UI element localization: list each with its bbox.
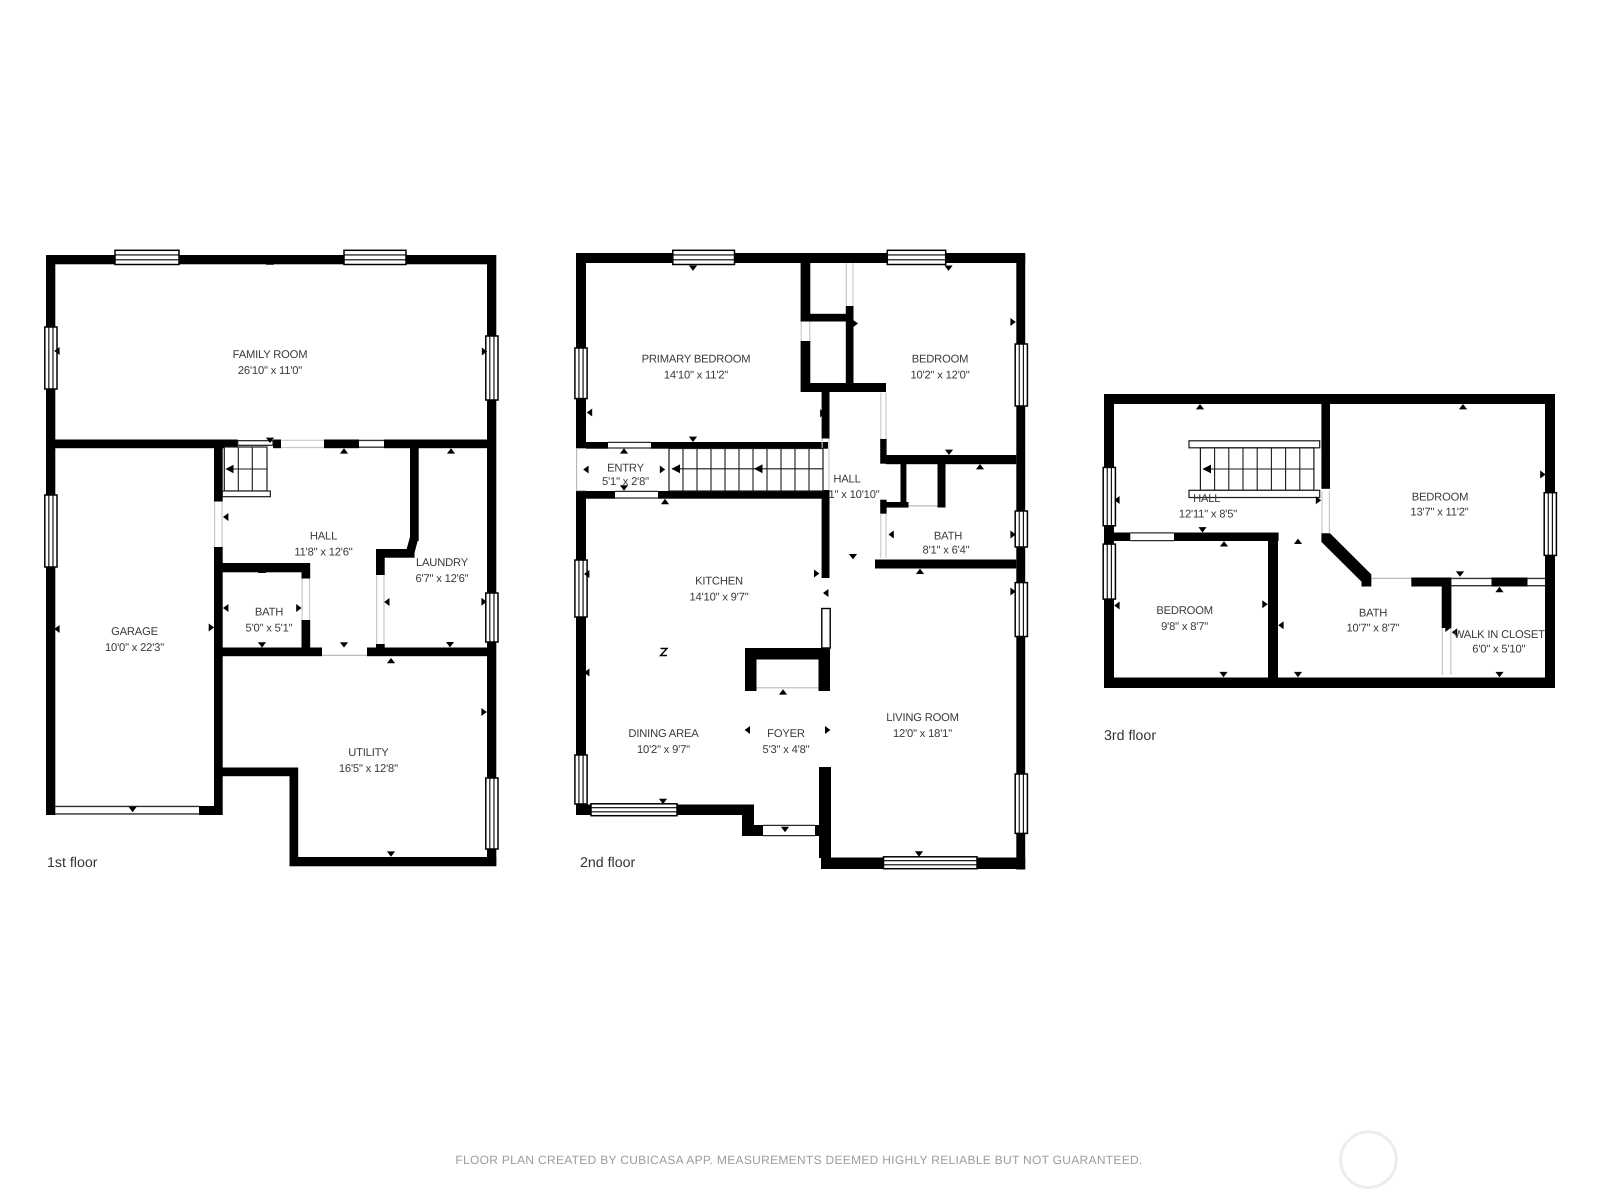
svg-text:KITCHEN: KITCHEN [695, 576, 743, 588]
svg-text:10'2" x 9'7": 10'2" x 9'7" [637, 744, 690, 756]
svg-text:8'1" x 6'4": 8'1" x 6'4" [923, 545, 970, 557]
svg-text:WALK IN CLOSET: WALK IN CLOSET [1454, 629, 1545, 641]
svg-text:26'10" x 11'0": 26'10" x 11'0" [238, 365, 302, 377]
svg-text:BEDROOM: BEDROOM [1156, 605, 1213, 617]
svg-text:FAMILY ROOM: FAMILY ROOM [233, 349, 308, 361]
svg-text:BATH: BATH [1359, 608, 1387, 620]
svg-text:UTILITY: UTILITY [348, 747, 389, 759]
svg-text:5'0" x 5'1": 5'0" x 5'1" [246, 622, 293, 634]
svg-text:14'10" x 11'2": 14'10" x 11'2" [664, 369, 728, 381]
svg-text:BEDROOM: BEDROOM [912, 354, 969, 366]
svg-text:BEDROOM: BEDROOM [1412, 492, 1469, 504]
svg-text:HALL: HALL [833, 474, 860, 486]
svg-text:FOYER: FOYER [767, 728, 805, 740]
svg-text:HALL: HALL [1193, 493, 1220, 505]
svg-text:BATH: BATH [255, 607, 283, 619]
svg-text:6'7" x 12'6": 6'7" x 12'6" [416, 573, 469, 585]
svg-text:10'7" x 8'7": 10'7" x 8'7" [1347, 623, 1400, 635]
svg-text:12'11" x 8'5": 12'11" x 8'5" [1179, 509, 1237, 521]
svg-text:5'1" x 2'8": 5'1" x 2'8" [602, 476, 649, 488]
svg-text:LIVING ROOM: LIVING ROOM [886, 712, 959, 724]
svg-text:DINING AREA: DINING AREA [628, 728, 699, 740]
svg-text:11'8" x 12'6": 11'8" x 12'6" [294, 546, 352, 558]
svg-text:14'10" x 9'7": 14'10" x 9'7" [689, 591, 748, 603]
svg-text:1st floor: 1st floor [47, 855, 98, 871]
svg-text:PRIMARY BEDROOM: PRIMARY BEDROOM [642, 354, 751, 366]
svg-text:16'5" x 12'8": 16'5" x 12'8" [339, 763, 398, 775]
svg-text:ENTRY: ENTRY [607, 463, 645, 475]
svg-text:FLOOR PLAN CREATED BY CUBICASA: FLOOR PLAN CREATED BY CUBICASA APP. MEAS… [455, 1153, 1142, 1167]
svg-text:13'7" x 11'2": 13'7" x 11'2" [1410, 507, 1468, 519]
svg-text:GARAGE: GARAGE [111, 626, 158, 638]
svg-text:12'0" x 18'1": 12'0" x 18'1" [893, 728, 952, 740]
svg-text:BATH: BATH [934, 531, 962, 543]
svg-text:9'8" x 8'7": 9'8" x 8'7" [1161, 621, 1208, 633]
svg-text:6'0" x 5'10": 6'0" x 5'10" [1472, 644, 1525, 656]
svg-text:10'0" x 22'3": 10'0" x 22'3" [105, 642, 164, 654]
svg-text:HALL: HALL [310, 531, 337, 543]
svg-text:10'2" x 12'0": 10'2" x 12'0" [910, 369, 969, 381]
svg-text:3rd floor: 3rd floor [1104, 728, 1156, 744]
svg-text:2nd floor: 2nd floor [580, 855, 635, 871]
svg-text:LAUNDRY: LAUNDRY [416, 557, 469, 569]
svg-text:5'3" x 4'8": 5'3" x 4'8" [763, 744, 810, 756]
